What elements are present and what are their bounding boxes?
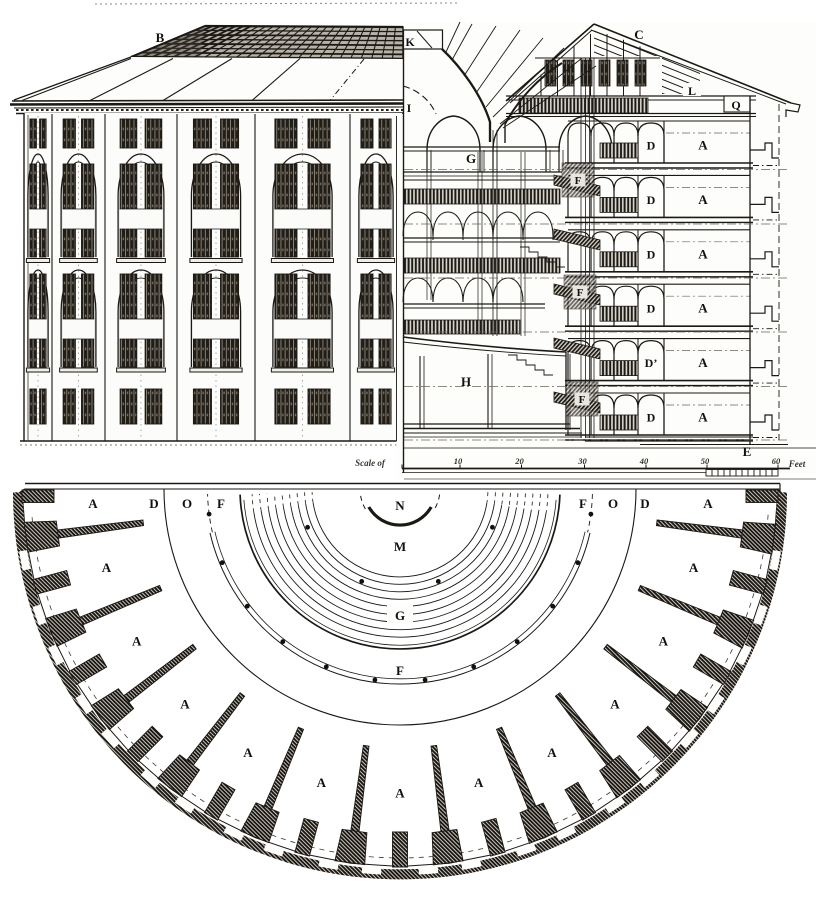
svg-text:K: K: [405, 35, 415, 49]
svg-text:E: E: [743, 444, 752, 459]
svg-text:A: A: [698, 138, 708, 153]
svg-text:A: A: [102, 560, 112, 575]
svg-text:O: O: [182, 496, 192, 511]
svg-text:N: N: [395, 498, 405, 513]
svg-text:I: I: [407, 101, 412, 115]
svg-text:D: D: [647, 302, 656, 316]
svg-text:20: 20: [514, 456, 524, 466]
svg-text:A: A: [698, 192, 708, 207]
svg-text:F: F: [579, 394, 586, 406]
svg-text:D: D: [647, 193, 656, 207]
svg-text:L: L: [688, 84, 696, 98]
svg-text:A: A: [698, 355, 708, 370]
svg-text:A: A: [703, 496, 713, 511]
svg-text:D: D: [647, 247, 656, 261]
svg-text:G: G: [395, 608, 405, 623]
svg-text:M: M: [394, 539, 406, 554]
svg-text:D: D: [640, 496, 649, 511]
svg-text:30: 30: [577, 456, 587, 466]
svg-text:O: O: [608, 496, 618, 511]
svg-text:A: A: [317, 775, 327, 790]
svg-text:10: 10: [454, 456, 463, 466]
svg-text:A: A: [474, 775, 484, 790]
svg-text:D’: D’: [645, 356, 658, 370]
svg-text:A: A: [395, 786, 405, 801]
svg-text:A: A: [698, 301, 708, 316]
svg-text:D: D: [647, 411, 656, 425]
svg-text:Scale of: Scale of: [355, 458, 386, 468]
svg-text:A: A: [659, 634, 669, 649]
svg-text:A: A: [180, 697, 190, 712]
svg-text:50: 50: [701, 456, 710, 466]
svg-text:F: F: [575, 175, 582, 187]
svg-text:A: A: [88, 496, 98, 511]
svg-text:Feet: Feet: [788, 459, 806, 469]
svg-text:A: A: [132, 634, 142, 649]
svg-text:F: F: [577, 287, 584, 299]
svg-text:A: A: [547, 745, 557, 760]
svg-text:Q: Q: [731, 98, 740, 112]
svg-text:A: A: [243, 745, 253, 760]
svg-text:F: F: [396, 663, 404, 678]
svg-text:A: A: [610, 697, 620, 712]
svg-text:C: C: [634, 27, 643, 42]
svg-text:D: D: [149, 496, 158, 511]
svg-text:60: 60: [772, 456, 781, 466]
svg-text:F: F: [217, 496, 225, 511]
svg-text:D: D: [647, 139, 656, 153]
svg-text:40: 40: [639, 456, 649, 466]
svg-text:A: A: [698, 410, 708, 425]
svg-text:B: B: [156, 30, 165, 45]
svg-text:A: A: [689, 560, 699, 575]
svg-text:A: A: [698, 246, 708, 261]
svg-text:F: F: [579, 496, 587, 511]
svg-text:G: G: [466, 151, 476, 166]
